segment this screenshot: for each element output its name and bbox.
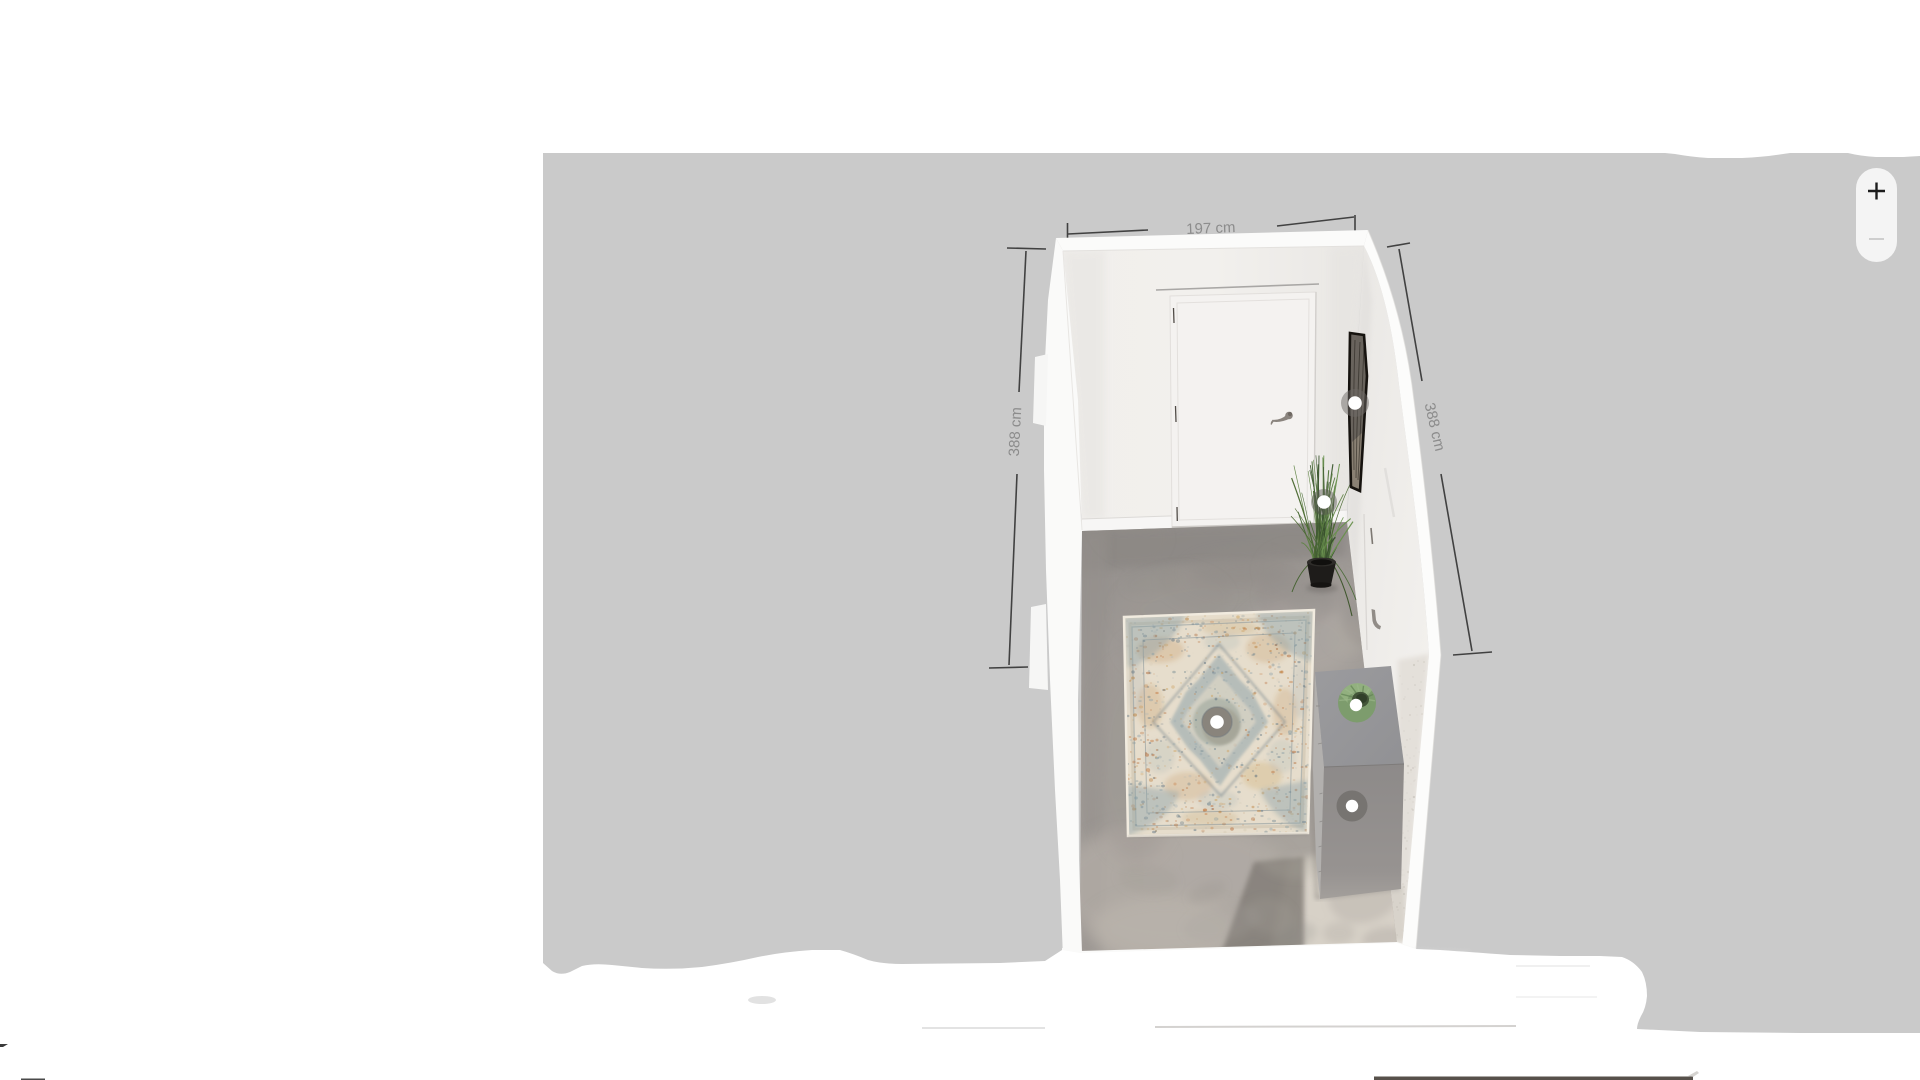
svg-text:388 cm: 388 cm [1006, 407, 1026, 457]
